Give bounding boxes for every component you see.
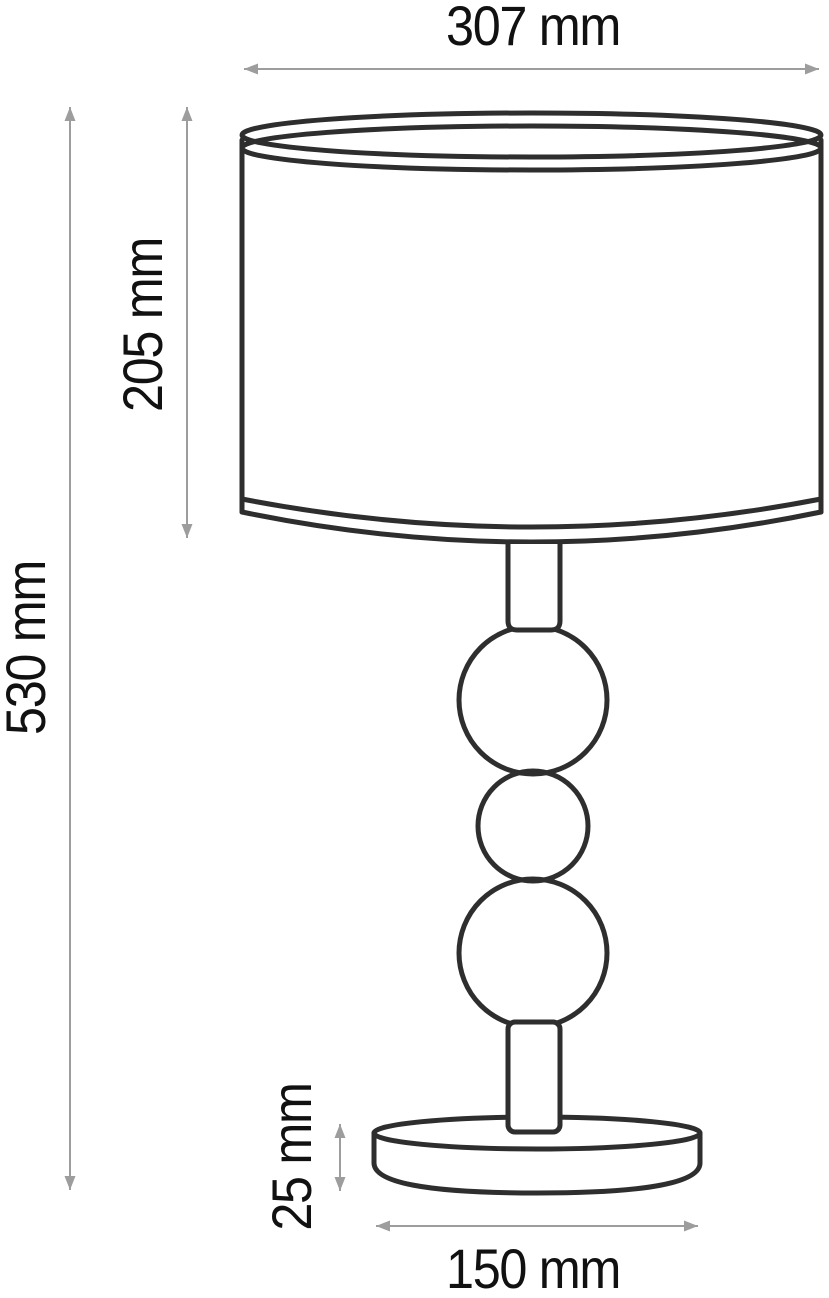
lamp-outline — [242, 113, 821, 1193]
dimension-lines — [70, 69, 819, 1226]
ball-middle — [478, 771, 588, 881]
lower-stem — [508, 1022, 560, 1132]
shade-width-label: 307 mm — [446, 0, 620, 54]
lamp-dimension-diagram: 307 mm 205 mm 530 mm 25 mm 150 mm — [0, 0, 829, 1298]
base-width-label: 150 mm — [446, 1241, 620, 1297]
upper-stem — [508, 544, 560, 630]
total-height-label: 530 mm — [0, 561, 54, 735]
shade-height-label: 205 mm — [115, 238, 171, 412]
base-height-label: 25 mm — [264, 1083, 320, 1230]
shade-bottom-rim-upper — [242, 499, 821, 527]
ball-top — [459, 626, 607, 774]
shade-top-rim-inner — [242, 126, 821, 170]
lamp-shade — [242, 113, 821, 542]
lamp-line-drawing — [0, 0, 829, 1298]
shade-top-rim-outer — [242, 113, 821, 157]
ball-bottom — [459, 879, 607, 1027]
